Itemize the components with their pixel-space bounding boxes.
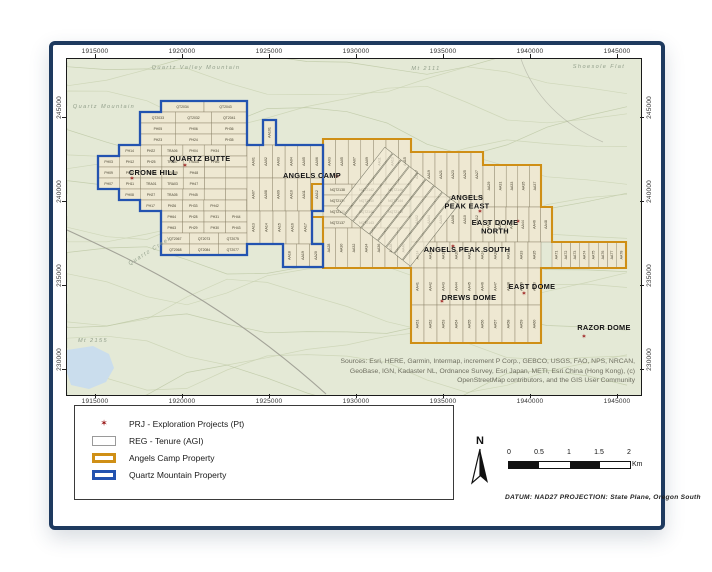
tenure-cell-label: AA45 [467,282,471,291]
tenure-cell-label: AA19 [301,251,305,260]
tenure-cell-label: AA17 [303,223,307,232]
tenure-cell-label: AA10 [463,215,467,224]
axis-tick [640,369,644,370]
axis-label: 1925000 [256,398,283,405]
tenure-cell-label: NQT2138 [330,188,345,192]
tenure-cell-label: AA54 [454,320,458,329]
tenure-cell-label: PH36 [225,127,234,131]
tenure-cell-label: TRA01 [146,182,157,186]
place-label: RAZOR DOME [577,323,631,332]
legend-item-tenure: REG - Tenure (AGI) [89,432,453,449]
tenure-cell-label: QT2041 [223,116,235,120]
tenure-cell [205,167,226,178]
tenure-cell-label: AA07 [251,190,255,199]
tenure-cell-label: AA27 [475,170,479,179]
terrain-label: Shoesole Flat [573,64,625,70]
tenure-cell-label: QT2068 [169,248,181,252]
tenure-cell-label: AA33 [519,251,523,260]
tenure-cell-label: AA02 [264,157,268,166]
place-label: CRONE HILL [129,168,177,177]
axis-tick [182,54,183,58]
axis-tick [269,54,270,58]
legend-item-prj: ✶ PRJ - Exploration Projects (Pt) [89,415,453,432]
tenure-cell-label: PH34 [211,149,220,153]
tenure-cell-label: PH27 [147,193,156,197]
place-label: DREWS DOME [442,293,497,302]
tenure-cell-label: TRA05 [167,193,178,197]
axis-tick [640,201,644,202]
tenure-cell-label: AA20 [314,251,318,260]
scale-tick-label: 0.5 [534,449,544,456]
tenure-cell-label: PH23 [154,138,163,142]
tenure-cell-label: AA37 [533,182,537,191]
tenure-cell-label: PH64 [168,215,177,219]
axis-label: 230000 [56,348,63,371]
tenure-cell-label: AA04 [289,157,293,166]
place-label: QUARTZ BUTTE [169,154,230,163]
axis-tick [443,54,444,58]
tenure-cell-label: QT2077 [227,248,239,252]
tenure-cell-label: PH42 [210,204,219,208]
tenure-cell-label: QT2075 [227,237,239,241]
north-arrow-icon [467,447,493,487]
legend-item-label: Quartz Mountain Property [129,470,226,480]
terrain-label: Quartz Valley Mountain [152,65,241,71]
tenure-cell-label: AA75 [592,251,596,260]
tenure-cell-label: AA07 [352,157,356,166]
tenure-cell-label: AA03 [277,157,281,166]
tenure-cell-label: AA31 [498,182,502,191]
axis-tick [62,285,66,286]
axis-label: 1920000 [169,398,196,405]
axis-label: 235000 [646,264,653,287]
tenure-cell-label: AA06 [315,157,319,166]
tenure-cell-label: AA42 [428,282,432,291]
axis-tick [356,394,357,398]
axis-tick [95,54,96,58]
map-canvas: QT2034QT2043QT2033QT2032QT2041PH05PH06PH… [66,58,642,396]
tenure-cell-label: PH26 [168,204,177,208]
tenure-cell-label: PH63 [168,226,177,230]
tenure-cell-label: AA08 [451,215,455,224]
tenure-cell-label: QT2084 [198,248,210,252]
axis-tick [530,394,531,398]
map-document-card: QT2034QT2043QT2033QT2032QT2041PH05PH06PH… [49,41,665,530]
tenure-cell-label: AA09 [277,190,281,199]
axis-tick [640,117,644,118]
axis-label: 1935000 [430,398,457,405]
tenure-cell-label: AA72 [564,251,568,260]
scale-tick-label: 1 [567,449,571,456]
tenure-cell-label: PH44 [232,215,241,219]
scale-bar-body [508,461,631,469]
tenure-cell-label: AA55 [467,320,471,329]
tenure-cell-label: PH25 [147,160,156,164]
tenure-cell-label: PH14 [125,149,134,153]
tenure-cell-label: AA05 [302,157,306,166]
tenure-cell-label: PH07 [104,182,113,186]
axis-tick [640,285,644,286]
scale-tick-labels: 00.511.52 [508,449,658,459]
tenure-cell-label: PH04 [189,149,198,153]
tenure-cell-label: PH47 [190,182,199,186]
tenure-cell-label: QT2043 [219,105,231,109]
tenure-cell-label: AA16 [290,223,294,232]
scale-tick-label: 2 [627,449,631,456]
legend-item-label: PRJ - Exploration Projects (Pt) [129,419,244,429]
tenure-cell-label: AA10 [289,190,293,199]
tenure-cell-label: AA71 [555,251,559,260]
tenure-swatch-icon [89,436,119,446]
tenure-cell-label: AA28 [327,244,331,253]
tenure-cell-label: AA53 [441,320,445,329]
map-attribution: Sources: Esri, HERE, Garmin, Intermap, i… [335,357,635,385]
tenure-cell-label: AA30 [340,244,344,253]
tenure-cell-label: AA48 [544,220,548,229]
place-label: PEAK EAST [445,202,490,211]
tenure-cell-label: AA44 [521,220,525,229]
tenure-cell-label: AA58 [506,320,510,329]
tenure-cell-label: AA44 [454,282,458,291]
axis-label: 230000 [646,348,653,371]
tenure-cell-label: AA29 [487,182,491,191]
axis-tick [182,394,183,398]
axis-tick [617,54,618,58]
tenure-cell-label: PH43 [232,226,241,230]
axis-tick [530,54,531,58]
tenure-cell-label: AA32 [352,244,356,253]
tenure-cell-label: AA33 [510,182,514,191]
tenure-cell-label: AA05 [340,157,344,166]
tenure-cell-label: AA43 [441,282,445,291]
tenure-cell-label: AA36 [377,244,381,253]
tenure-cell-label: AA76 [601,251,605,260]
legend-item-label: REG - Tenure (AGI) [129,436,203,446]
tenure-cell-label: AA01 [251,157,255,166]
scale-bar: 00.511.52 Km [508,449,658,483]
place-label: NORTH [481,227,509,236]
terrain-label: Quartz Mountain [73,104,135,110]
tenure-cell-label: AA12 [315,190,319,199]
tenure-cell-label: TRA06 [167,149,178,153]
tenure-cell [226,189,247,200]
axis-tick [617,394,618,398]
legend-item-quartz-mountain: Quartz Mountain Property [89,466,453,483]
tenure-cell-label: QT2034 [176,105,188,109]
axis-tick [356,54,357,58]
tenure-cell-label: AA09 [365,157,369,166]
tenure-cell [226,178,247,189]
tenure-cell-label: PH28 [189,215,198,219]
axis-label: 1940000 [517,398,544,405]
scale-tick-label: 0 [507,449,511,456]
star-icon: ✶ [89,419,119,428]
north-arrow: N [467,435,493,491]
axis-tick [62,201,66,202]
page: QT2034QT2043QT2033QT2032QT2041PH05PH06PH… [0,0,712,572]
tenure-cell-label: AA77 [610,251,614,260]
tenure-cell-label: QT2073 [198,237,210,241]
tenure-cell-label: AA101 [267,127,271,138]
place-label: ANGELS CAMP [283,171,341,180]
axis-tick [269,394,270,398]
angels-camp-swatch-icon [89,453,119,463]
tenure-cell-label: TRA03 [167,182,178,186]
tenure-cell-label: AA57 [493,320,497,329]
axis-tick [62,369,66,370]
tenure-cell-label: AA74 [582,251,586,260]
tenure-cell [225,200,246,211]
tenure-cell-label: PH05 [154,127,163,131]
tenure-cell-label: AA19 [427,170,431,179]
tenure-cell-label: AA41 [415,282,419,291]
axis-label: 240000 [646,180,653,203]
tenure-cell-label: AA08 [264,190,268,199]
scale-unit-label: Km [632,461,643,468]
tenure-cell-label: PH22 [147,149,156,153]
tenure-cell-label: AA47 [493,282,497,291]
tenure-cell-label: AA78 [619,251,623,260]
place-label: ANGELS PEAK SOUTH [424,245,510,254]
tenure-cell-label: PH24 [189,138,198,142]
axis-label: 1930000 [343,398,370,405]
tenure-cell-label: PH35 [225,138,234,142]
legend-box: ✶ PRJ - Exploration Projects (Pt) REG - … [74,405,454,500]
axis-label: 245000 [646,96,653,119]
north-label: N [467,435,493,447]
tenure-cell-label: AA52 [428,320,432,329]
tenure-cell-label: AA21 [439,170,443,179]
tenure-cell-label: AA59 [519,320,523,329]
axis-tick [443,394,444,398]
tenure-cell-label: PH31 [211,215,220,219]
tenure-cell-label: AA46 [480,282,484,291]
tenure-cell-label: PH08 [125,193,134,197]
exploration-project-star-icon: ✶ [581,332,587,340]
tenure-cell-label: AA34 [364,244,368,253]
tenure-cell-label: AA73 [573,251,577,260]
tenure-cell-label: AA13 [251,223,255,232]
tenure-cell-label: NQT2137 [330,221,345,225]
scale-tick-label: 1.5 [594,449,604,456]
tenure-cell-label: AA60 [532,320,536,329]
axis-tick [62,117,66,118]
tenure-cell [205,178,226,189]
datum-note: DATUM: NAD27 PROJECTION: State Plane, Or… [505,494,701,501]
tenure-cell-label: AA15 [277,223,281,232]
terrain-label: Mt 2155 [78,338,108,344]
tenure-cell [204,189,225,200]
tenure-cell-label: AA11 [302,190,306,199]
tenure-cell-label: AA51 [415,320,419,329]
tenure-cell [226,167,247,178]
axis-label: 1915000 [82,398,109,405]
tenure-cell-label: QT2033 [152,116,164,120]
legend-item-label: Angels Camp Property [129,453,215,463]
tenure-cell-label: PH03 [104,160,113,164]
tenure-cell-label: PH48 [190,171,199,175]
tenure-cell-label: PH12 [126,160,135,164]
tenure-cell-label: AA56 [480,320,484,329]
tenure-cell-label: PH29 [189,226,198,230]
tenure-cell-label: AA35 [522,182,526,191]
tenure-cell-label: AA14 [264,223,268,232]
tenure-cell-label: PH06 [189,127,198,131]
tenure-cell-label: PH17 [146,204,155,208]
tenure-cell-label: AA25 [463,170,467,179]
tenure-cell-label: PH30 [211,226,220,230]
legend-item-angels-camp: Angels Camp Property [89,449,453,466]
quartz-mountain-swatch-icon [89,470,119,480]
axis-label: 240000 [56,180,63,203]
tenure-cell-label: PH45 [189,193,198,197]
tenure-cell-label: AA18 [288,251,292,260]
tenure-cell-label: AA35 [532,251,536,260]
axis-label: 1945000 [604,398,631,405]
tenure-cell-label: AA23 [451,170,455,179]
tenure-cell-label: PH09 [104,171,113,175]
axis-tick [95,394,96,398]
tenure-cell-label: AA46 [533,220,537,229]
axis-label: 235000 [56,264,63,287]
map-figure: QT2034QT2043QT2033QT2032QT2041PH05PH06PH… [67,59,641,395]
tenure-cell-label: PH33 [189,204,198,208]
axis-label: 245000 [56,96,63,119]
tenure-cell-label: AA03 [327,157,331,166]
tenure-cell-label: QT2032 [187,116,199,120]
place-label: EAST DOME [509,282,556,291]
terrain-label: Mt 2111 [411,66,440,72]
